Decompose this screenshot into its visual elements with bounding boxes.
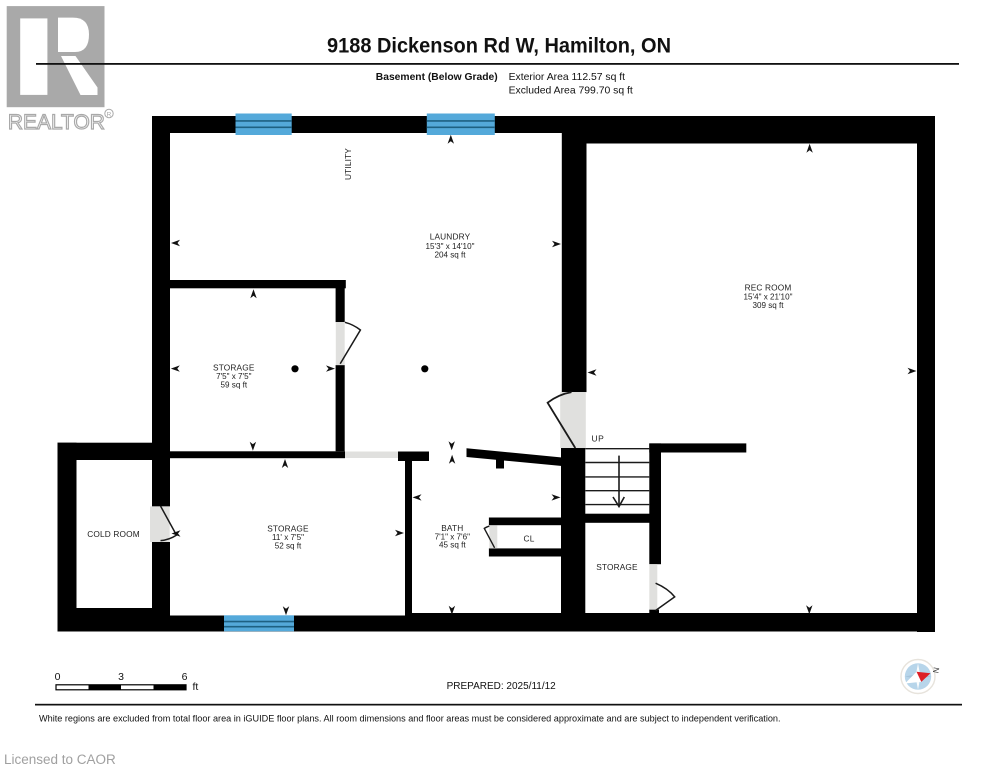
svg-text:UP: UP [592,434,605,444]
svg-text:PREPARED: 2025/11/12: PREPARED: 2025/11/12 [447,681,557,692]
svg-text:UTILITY: UTILITY [343,148,353,180]
svg-text:Licensed to CAOR: Licensed to CAOR [4,752,116,767]
svg-text:6: 6 [182,671,188,683]
svg-text:204 sq ft: 204 sq ft [434,250,466,259]
svg-text:ft: ft [193,681,199,693]
svg-text:9188 Dickenson Rd W, Hamilton,: 9188 Dickenson Rd W, Hamilton, ON [327,34,671,58]
svg-text:R: R [107,111,112,118]
svg-text:COLD ROOM: COLD ROOM [87,529,140,539]
svg-text:0: 0 [55,671,61,683]
svg-text:REALTOR: REALTOR [8,110,105,134]
svg-text:45 sq ft: 45 sq ft [439,541,466,550]
svg-text:Exterior Area 112.57 sq ft: Exterior Area 112.57 sq ft [509,72,626,83]
svg-text:59 sq ft: 59 sq ft [221,380,248,389]
svg-text:REC ROOM: REC ROOM [745,283,792,293]
svg-text:309 sq ft: 309 sq ft [752,301,784,310]
svg-text:CL: CL [524,534,535,544]
svg-text:LAUNDRY: LAUNDRY [430,232,471,242]
svg-text:Excluded Area 799.70 sq ft: Excluded Area 799.70 sq ft [509,86,633,97]
svg-text:Basement (Below Grade): Basement (Below Grade) [376,72,498,83]
svg-text:White regions are excluded fro: White regions are excluded from total fl… [39,714,781,724]
svg-text:STORAGE: STORAGE [596,562,638,572]
svg-text:STORAGE: STORAGE [213,362,255,372]
svg-text:3: 3 [118,671,124,683]
svg-text:52 sq ft: 52 sq ft [275,541,302,550]
